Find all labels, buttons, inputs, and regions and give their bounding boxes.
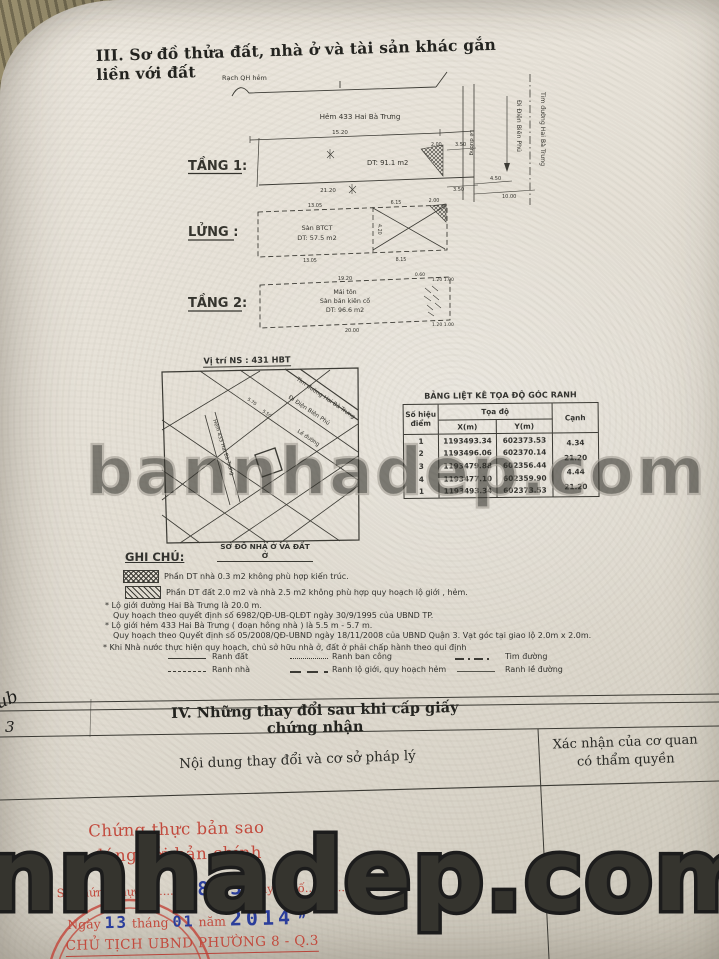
diagonal-hatch-swatch xyxy=(125,586,161,599)
scanned-certificate-page: III. Sơ đồ thửa đất, nhà ở và tài sản kh… xyxy=(0,0,719,959)
legend-line-ranh-nha xyxy=(168,671,206,672)
hatch-1-text: Phần DT nhà 0.3 m2 không phù hợp kiến tr… xyxy=(164,572,349,581)
stamp-quote-mark: ” xyxy=(298,913,306,928)
x-value: 1193493.34 xyxy=(444,486,493,496)
note-2: Quy hoạch theo quyết định số 6982/QĐ-UB-… xyxy=(113,611,433,620)
notes-title: GHI CHÚ: xyxy=(125,550,184,564)
point-number: 4 xyxy=(419,474,424,483)
point-number-column: 1 2 3 4 1 xyxy=(404,435,440,498)
section-4-right-column-header: Xác nhận của cơ quan có thẩm quyền xyxy=(537,731,713,773)
hatch-2-text: Phần DT đất 2.0 m2 và nhà 2.5 m2 không p… xyxy=(166,588,468,597)
y-value: 602370.14 xyxy=(503,448,546,457)
legend-label: Ranh nhà xyxy=(212,665,250,674)
col-header-y: Y(m) xyxy=(497,419,553,434)
col-header-canh: Cạnh xyxy=(553,403,598,433)
thang-label: tháng xyxy=(132,915,169,931)
stamp-year: 2014 xyxy=(230,905,295,930)
y-value: 602359.90 xyxy=(503,473,546,482)
edge-length-column: 4.34 21.20 4.44 21.20 xyxy=(553,433,599,496)
coordinate-table: BẢNG LIỆT KÊ TỌA ĐỘ GÓC RANH Số hiệu điể… xyxy=(402,390,599,499)
stamp-line-1: Chứng thực bản sao xyxy=(88,818,265,841)
col-header-point: Số hiệu điểm xyxy=(404,405,439,435)
note-4: Quy hoạch theo Quyết định số 05/2008/QĐ-… xyxy=(113,631,591,640)
stamp-serial-number: 0843 xyxy=(181,877,247,900)
stamp-day: 13 xyxy=(104,913,128,932)
stamp-line-2: đúng với bản chính xyxy=(93,843,262,866)
nam-label: năm xyxy=(198,914,226,930)
map-title: Vị trí NS : 431 HBT xyxy=(203,354,291,368)
point-number: 1 xyxy=(418,437,423,446)
stamp-sctb-label: SCT/B xyxy=(371,879,408,894)
legend-line-tim-duong xyxy=(455,658,493,660)
stamp-so-chung-thuc-label: Số chứng thực xyxy=(56,884,140,900)
legend-label: Ranh lề đường xyxy=(505,665,563,674)
notes-hatch-row-1: Phần DT nhà 0.3 m2 không phù hợp kiến tr… xyxy=(123,570,349,583)
stamp-book-number: 0 xyxy=(359,880,367,895)
col-header-toado: Tọa độ xyxy=(439,403,553,420)
point-number: 3 xyxy=(419,462,424,471)
note-1: * Lộ giới đường Hai Bà Trưng là 20.0 m. xyxy=(105,601,262,610)
paper-moire-texture xyxy=(0,0,719,959)
ngay-label: Ngày xyxy=(67,916,101,932)
x-value: 1193493.34 xyxy=(443,436,492,446)
col-header-point-line2: điểm xyxy=(411,419,431,428)
legend-line-ranh-dat xyxy=(168,658,206,659)
stamp-month: 01 xyxy=(172,912,194,930)
x-value: 1193496.06 xyxy=(443,448,492,458)
legend-label: Ranh đất xyxy=(212,652,248,661)
edge-length: 21.20 xyxy=(564,453,587,462)
dotted-leader: .......... xyxy=(141,884,178,899)
legend-label: Ranh lộ giới, quy hoạch hẻm xyxy=(332,665,446,674)
crosshatch-swatch xyxy=(123,570,159,583)
x-value: 1193477.10 xyxy=(444,474,493,484)
handwritten-mark-2: 3 xyxy=(5,718,15,736)
x-value: 1193479.88 xyxy=(443,461,492,471)
legend-label: Ranh ban công xyxy=(332,652,392,661)
edge-length: 4.44 xyxy=(567,467,585,476)
map-caption: SƠ ĐỒ NHÀ Ở VÀ ĐẤT Ở xyxy=(217,542,313,562)
notes-hatch-row-2: Phần DT đất 2.0 m2 và nhà 2.5 m2 không p… xyxy=(125,586,468,599)
legend-line-ranh-le-duong xyxy=(457,671,495,672)
x-coordinate-column: 1193493.34 1193496.06 1193479.88 1193477… xyxy=(439,434,498,498)
dotted-leader: .............. xyxy=(305,880,356,895)
y-value: 602373.53 xyxy=(503,486,546,495)
edge-length: 21.20 xyxy=(564,482,587,491)
y-value: 602356.44 xyxy=(503,461,546,470)
point-number: 1 xyxy=(419,487,424,496)
legend-label: Tim đường xyxy=(505,652,547,661)
y-coordinate-column: 602373.53 602370.14 602356.44 602359.90 … xyxy=(497,433,554,497)
coordinate-table-title: BẢNG LIỆT KÊ TỌA ĐỘ GÓC RANH xyxy=(402,390,598,401)
legend-line-ranh-lo-gioi xyxy=(290,671,328,673)
section-4-title: IV. Những thay đổi sau khi cấp giấy chứn… xyxy=(150,699,481,740)
note-3: * Lộ giới hẻm 433 Hai Bà Trưng ( đoạn hô… xyxy=(105,621,372,630)
edge-length: 4.34 xyxy=(566,439,584,448)
legend-line-ranh-ban-cong xyxy=(290,658,328,659)
y-value: 602373.53 xyxy=(503,435,546,444)
col-header-x: X(m) xyxy=(439,420,497,435)
stamp-quyen-so-label: Quyển số xyxy=(250,881,305,896)
line-legend: Ranh đất Ranh nhà Ranh ban công Ranh lộ … xyxy=(160,650,590,680)
point-number: 2 xyxy=(418,449,423,458)
stamp-date-line: Ngày 13 tháng 01 năm 2014 ” xyxy=(67,905,306,934)
